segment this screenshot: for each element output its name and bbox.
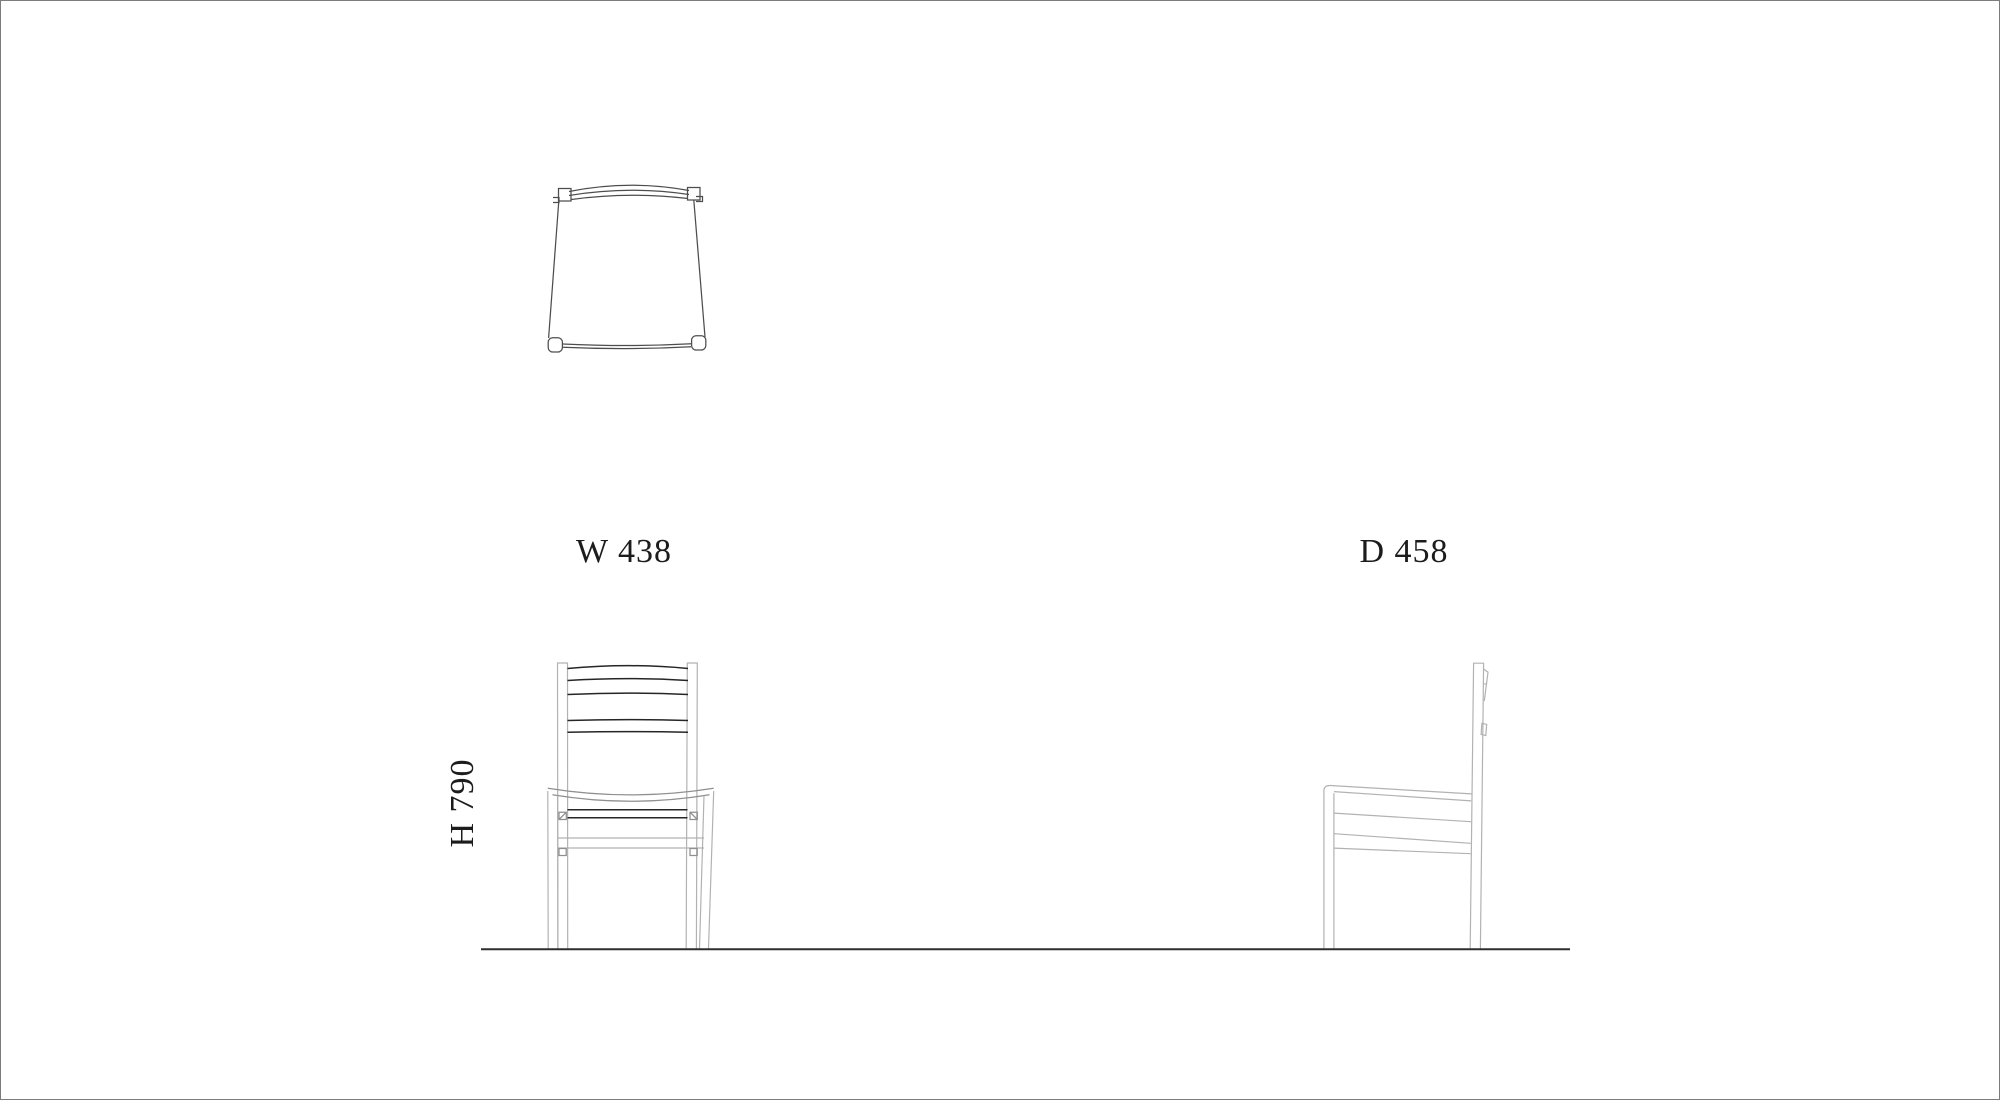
front-right-leg: [700, 791, 714, 949]
chair-technical-drawing: [1, 1, 2000, 1100]
plan-front-right-foot: [692, 336, 706, 350]
side-top-rail-profile: [1484, 669, 1489, 701]
width-dimension-label: W 438: [576, 533, 672, 571]
front-left-leg: [548, 791, 558, 949]
front-stretcher: [558, 838, 704, 848]
depth-dimension-label: D 458: [1359, 533, 1448, 571]
side-slat-profile: [1481, 723, 1487, 735]
side-front-leg: [1324, 792, 1334, 949]
front-back-top-rail: [568, 666, 689, 695]
front-seat-apron: [568, 810, 688, 818]
side-seat-and-rails: [1324, 785, 1472, 853]
drawing-sheet: W 438 D 458 H 790: [0, 0, 2000, 1100]
front-seat-curves: [548, 788, 714, 801]
plan-seat-front-edge: [563, 344, 692, 349]
plan-front-left-foot: [548, 338, 562, 352]
chair-front-view: [548, 663, 714, 949]
plan-seat-side-edges: [549, 200, 705, 338]
plan-back-rail-curves: [569, 185, 689, 199]
side-back-post: [1470, 663, 1483, 949]
front-stretcher-blocks: [559, 849, 697, 856]
chair-top-view: [548, 185, 706, 352]
height-dimension-label: H 790: [444, 758, 482, 847]
front-rear-legs: [558, 663, 698, 949]
front-back-slat: [568, 720, 689, 733]
chair-side-view: [1324, 663, 1488, 949]
